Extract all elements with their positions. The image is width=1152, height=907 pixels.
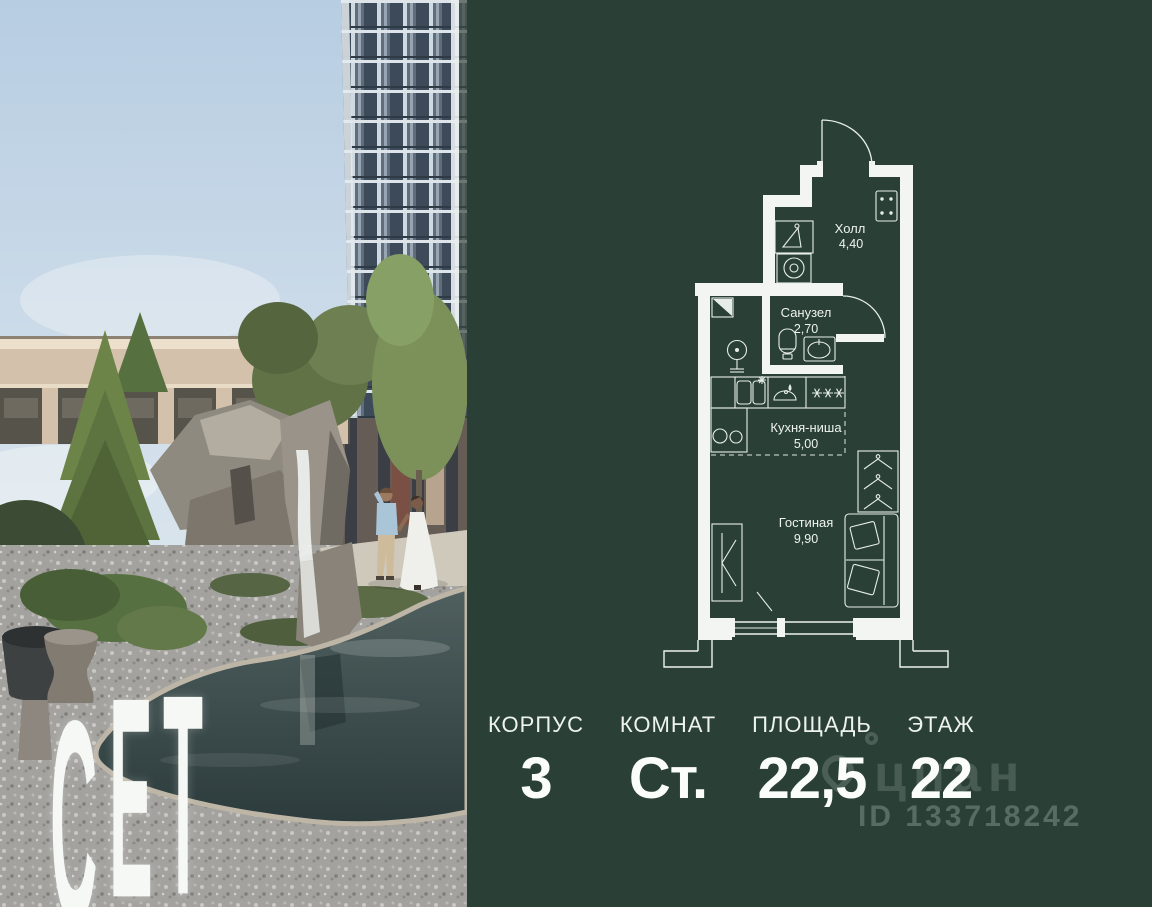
courtyard-photo: СЕТ xyxy=(0,0,467,907)
bathroom-sink xyxy=(804,337,835,361)
room-name: Санузел xyxy=(781,305,832,320)
summary-label: КОМНАТ xyxy=(620,712,716,738)
summary-komnat: КОМНАТ Ст. xyxy=(620,712,716,812)
washing-machine xyxy=(777,254,811,283)
parapet-outline xyxy=(664,640,948,667)
logo-letter: Е xyxy=(109,655,153,907)
summary-ploshchad: ПЛОЩАДЬ 22,5 xyxy=(752,712,872,812)
sofa xyxy=(845,514,898,607)
plan-walls xyxy=(695,161,913,640)
listing-card: СЕТ xyxy=(0,0,1152,907)
room-name: Холл xyxy=(835,221,866,236)
summary-label: ПЛОЩАДЬ xyxy=(752,712,872,738)
summary-korpus: КОРПУС 3 xyxy=(488,712,584,812)
floor-plan: Холл 4,40 Санузел 2,70 Кухня-ниша 5,00 Г… xyxy=(660,100,960,690)
summary-label: КОРПУС xyxy=(488,712,584,738)
room-name: Гостиная xyxy=(779,515,834,530)
summary-etazh: ЭТАЖ 22 xyxy=(907,712,975,812)
summary-value: 22,5 xyxy=(752,745,872,812)
info-panel: Холл 4,40 Санузел 2,70 Кухня-ниша 5,00 Г… xyxy=(467,0,1152,907)
wardrobe-hangers xyxy=(858,451,898,512)
room-area: 5,00 xyxy=(794,437,818,451)
wardrobe-left xyxy=(712,524,772,611)
room-area: 4,40 xyxy=(839,237,863,251)
summary-value: Ст. xyxy=(620,745,716,812)
shower xyxy=(728,341,747,373)
entrance-door xyxy=(822,120,872,166)
kitchen-appliances xyxy=(711,376,845,408)
kitchen-niche-boundary xyxy=(711,376,845,455)
window xyxy=(730,618,858,637)
logo-letter: Т xyxy=(163,652,203,907)
room-area: 9,90 xyxy=(794,532,818,546)
summary-value: 3 xyxy=(488,745,584,812)
hall-closet xyxy=(775,221,813,253)
summary-label: ЭТАЖ xyxy=(907,712,975,738)
summary-value: 22 xyxy=(907,745,975,812)
logo-letter: С xyxy=(50,678,97,907)
electrical-panel xyxy=(876,191,897,221)
room-name: Кухня-ниша xyxy=(770,420,842,435)
hob xyxy=(711,408,747,452)
bathroom-door xyxy=(843,296,885,338)
room-area: 2,70 xyxy=(794,322,818,336)
shaft xyxy=(712,298,733,317)
project-logo: СЕТ xyxy=(50,652,212,736)
